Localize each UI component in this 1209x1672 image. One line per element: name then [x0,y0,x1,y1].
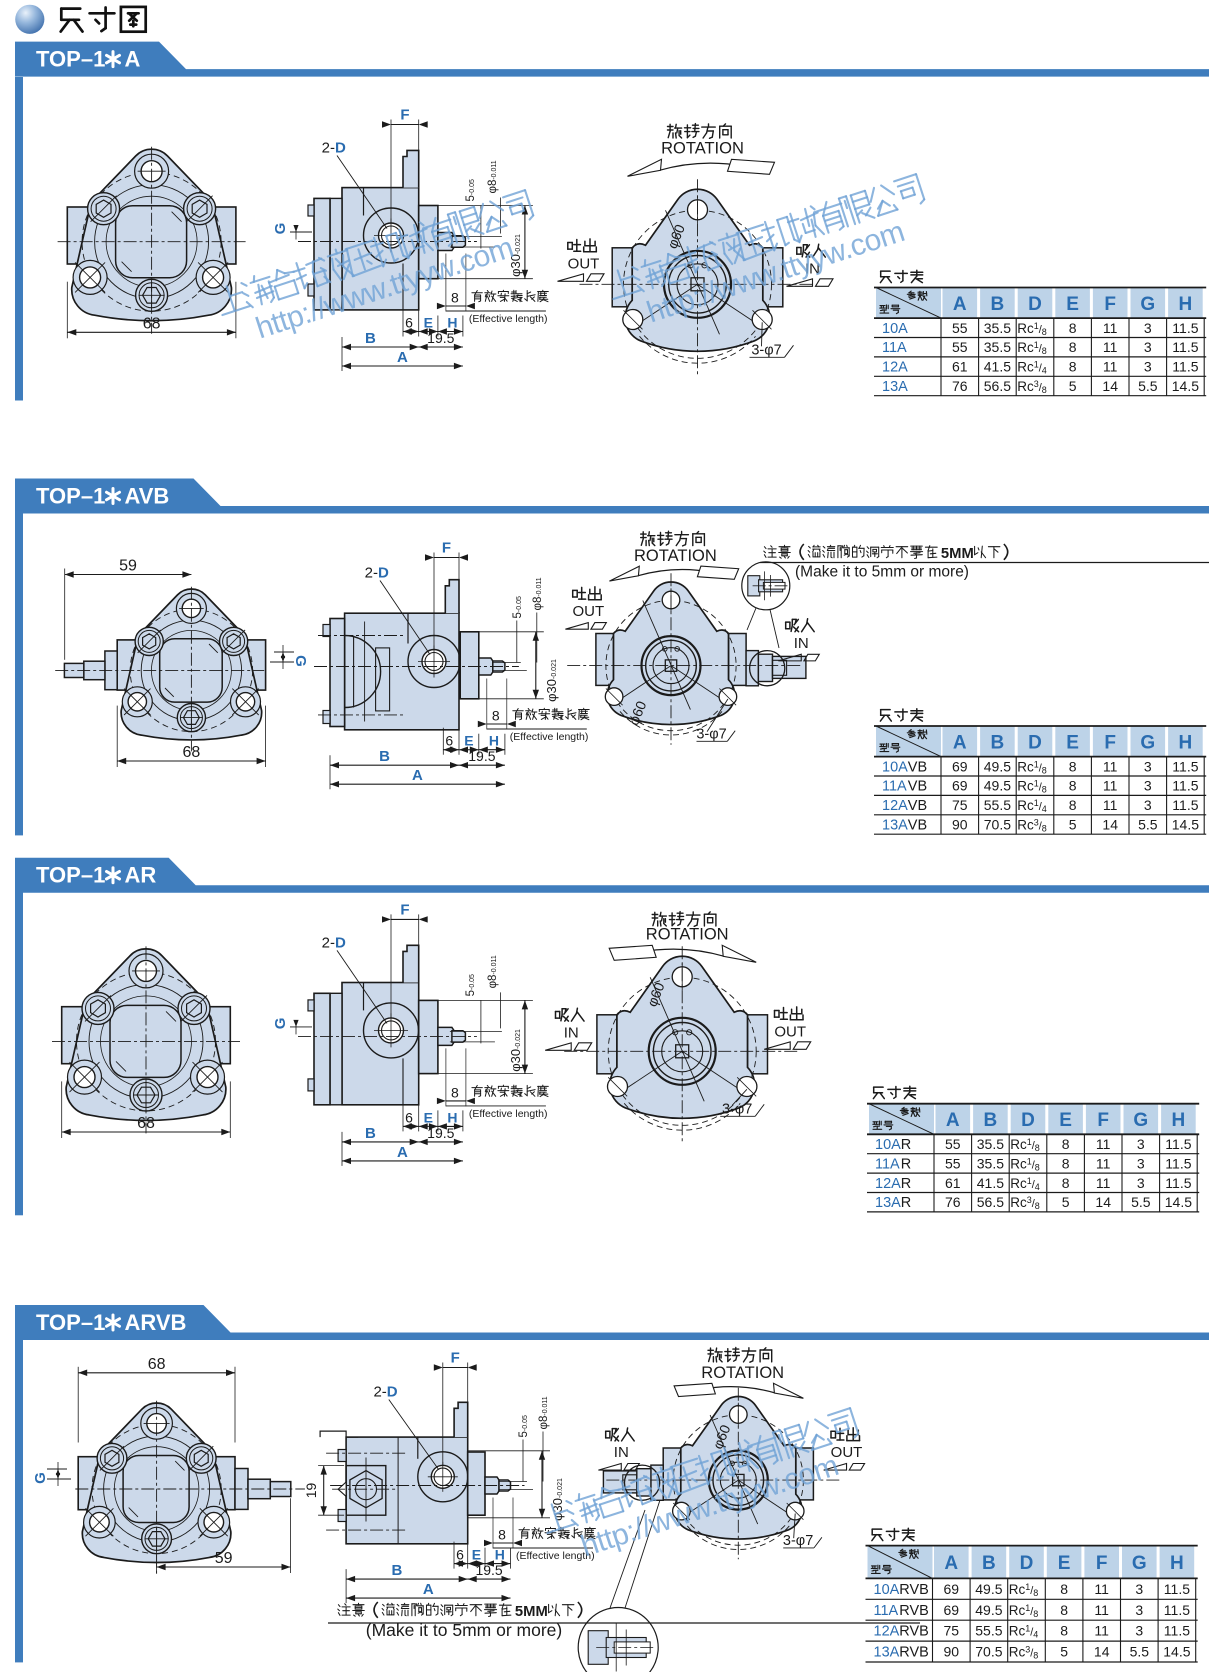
svg-text:D: D [1021,1110,1035,1131]
svg-text:3-φ7: 3-φ7 [783,1533,813,1549]
svg-text:14: 14 [1094,1644,1110,1660]
svg-text:OUT: OUT [774,1023,806,1040]
svg-text:B: B [991,732,1005,753]
svg-text:6: 6 [405,315,413,331]
svg-text:A: A [953,732,967,753]
svg-text:RVB: RVB [899,1624,929,1640]
svg-text:D: D [1028,732,1042,753]
svg-text:10A: 10A [882,759,908,775]
svg-text:55: 55 [945,1136,961,1152]
svg-text:3-φ7: 3-φ7 [751,342,781,358]
svg-text:6: 6 [405,1109,413,1125]
svg-text:55: 55 [952,320,968,336]
svg-text:G: G [1132,1553,1147,1574]
svg-text:IN: IN [794,635,809,652]
svg-text:12A: 12A [882,360,908,376]
svg-text:68: 68 [183,744,201,761]
svg-text:8: 8 [1069,359,1077,375]
svg-text:11: 11 [1103,320,1118,336]
svg-text:TOP–1: TOP–1 [36,47,105,72]
svg-text:11: 11 [1096,1175,1111,1191]
svg-text:14: 14 [1102,378,1118,394]
svg-text:11.5: 11.5 [1172,359,1198,375]
svg-text:68: 68 [137,1115,155,1132]
svg-text:5: 5 [1069,378,1077,394]
svg-text:5MM: 5MM [515,1604,548,1620]
svg-text:14.5: 14.5 [1163,1644,1190,1660]
svg-text:70.5: 70.5 [984,817,1011,833]
svg-text:49.5: 49.5 [975,1602,1002,1618]
svg-text:69: 69 [952,778,968,794]
svg-text:13A: 13A [874,1645,900,1661]
svg-text:11: 11 [1094,1602,1109,1618]
svg-text:8: 8 [1069,797,1077,813]
svg-text:3: 3 [1144,320,1152,336]
svg-text:55.5: 55.5 [975,1623,1002,1639]
svg-text:11: 11 [1094,1623,1109,1639]
svg-text:(Make it to 5mm or more): (Make it to 5mm or more) [795,564,969,581]
svg-text:D: D [378,565,389,582]
svg-text:E: E [1066,294,1079,315]
svg-text:35.5: 35.5 [977,1155,1004,1171]
svg-text:11: 11 [1103,339,1118,355]
svg-text:13A: 13A [882,379,908,395]
svg-text:A: A [412,767,423,784]
svg-text:11.5: 11.5 [1172,320,1198,336]
svg-text:90: 90 [952,817,968,833]
svg-text:8: 8 [1062,1136,1070,1152]
svg-text:8: 8 [498,1527,506,1543]
svg-text:B: B [984,1110,998,1131]
svg-text:49.5: 49.5 [984,758,1011,774]
svg-text:(Effective length): (Effective length) [510,731,589,743]
svg-text:F: F [400,107,409,124]
svg-text:G: G [1140,294,1155,315]
svg-text:41.5: 41.5 [977,1175,1004,1191]
svg-text:E: E [1058,1553,1071,1574]
svg-text:90: 90 [944,1644,960,1660]
svg-text:F: F [1104,294,1116,315]
svg-text:56.5: 56.5 [977,1194,1004,1210]
svg-text:RVB: RVB [899,1603,929,1619]
svg-text:11.5: 11.5 [1165,1155,1191,1171]
svg-text:11: 11 [1096,1155,1111,1171]
svg-text:69: 69 [952,758,968,774]
svg-text:5.5: 5.5 [1130,1644,1150,1660]
svg-text:RVB: RVB [899,1645,929,1661]
svg-text:AR: AR [125,863,157,888]
svg-text:12A: 12A [882,798,908,814]
svg-text:TOP–1: TOP–1 [36,1310,105,1335]
svg-text:76: 76 [945,1194,961,1210]
svg-text:10A: 10A [882,321,908,337]
svg-text:3: 3 [1135,1623,1143,1639]
svg-text:H: H [447,315,457,331]
svg-text:E: E [464,733,473,749]
svg-text:41.5: 41.5 [984,359,1011,375]
svg-text:H: H [489,733,499,749]
svg-text:G: G [292,655,309,667]
svg-text:56.5: 56.5 [984,378,1011,394]
svg-text:ROTATION: ROTATION [701,1364,784,1382]
svg-text:B: B [379,748,390,765]
svg-text:19.5: 19.5 [468,748,495,764]
svg-text:6: 6 [445,733,453,749]
svg-text:55.5: 55.5 [984,797,1011,813]
svg-text:75: 75 [944,1623,960,1639]
svg-text:70.5: 70.5 [975,1644,1002,1660]
svg-text:8: 8 [1069,758,1077,774]
svg-text:3: 3 [1137,1175,1145,1191]
svg-text:ROTATION: ROTATION [646,925,729,943]
svg-text:D: D [1020,1553,1034,1574]
svg-text:14: 14 [1102,817,1118,833]
svg-text:8: 8 [492,708,500,724]
svg-text:8: 8 [451,290,459,306]
svg-text:8: 8 [1060,1581,1068,1597]
svg-text:3: 3 [1144,359,1152,375]
svg-text:3: 3 [1144,339,1152,355]
svg-text:12A: 12A [875,1176,901,1192]
svg-text:H: H [1172,1110,1186,1131]
svg-text:B: B [991,294,1005,315]
svg-text:68: 68 [148,1356,166,1373]
svg-text:H: H [1170,1553,1184,1574]
svg-text:11.5: 11.5 [1172,797,1198,813]
svg-text:F: F [442,540,451,557]
svg-text:13A: 13A [882,818,908,834]
svg-text:D: D [1028,294,1042,315]
svg-text:B: B [391,1562,402,1579]
svg-text:68: 68 [143,315,161,332]
svg-text:IN: IN [564,1024,579,1041]
svg-text:3: 3 [1137,1136,1145,1152]
svg-text:H: H [447,1109,457,1125]
svg-text:R: R [901,1176,911,1192]
svg-text:10A: 10A [875,1137,901,1153]
svg-text:8: 8 [451,1084,459,1100]
svg-text:49.5: 49.5 [984,778,1011,794]
svg-text:VB: VB [908,759,927,775]
svg-text:H: H [495,1547,505,1563]
svg-text:11.5: 11.5 [1172,339,1198,355]
svg-text:11: 11 [1094,1581,1109,1597]
svg-text:69: 69 [944,1602,960,1618]
svg-text:A: A [944,1553,958,1574]
svg-text:2-: 2- [322,140,335,157]
svg-text:A: A [397,1144,408,1161]
svg-text:11.5: 11.5 [1164,1602,1190,1618]
svg-text:AVB: AVB [125,484,170,509]
svg-text:E: E [1066,732,1079,753]
svg-text:69: 69 [944,1581,960,1597]
svg-text:G: G [1140,732,1155,753]
svg-text:11A: 11A [882,779,907,795]
svg-text:H: H [1179,732,1193,753]
svg-text:3: 3 [1144,778,1152,794]
svg-text:11: 11 [1103,758,1118,774]
svg-text:5.5: 5.5 [1131,1194,1151,1210]
svg-text:IN: IN [614,1444,629,1461]
svg-text:35.5: 35.5 [977,1136,1004,1152]
svg-text:G: G [1133,1110,1148,1131]
svg-text:55: 55 [945,1155,961,1171]
svg-text:OUT: OUT [572,603,604,620]
svg-text:5MM: 5MM [941,546,974,562]
svg-text:5: 5 [1060,1644,1068,1660]
svg-text:A: A [125,47,141,72]
svg-text:11.5: 11.5 [1164,1581,1190,1597]
svg-text:35.5: 35.5 [984,339,1011,355]
svg-text:A: A [423,1581,434,1598]
svg-text:11A: 11A [882,340,907,356]
svg-text:14: 14 [1095,1194,1111,1210]
svg-text:G: G [272,1018,289,1030]
svg-text:VB: VB [908,818,927,834]
svg-text:3: 3 [1135,1581,1143,1597]
svg-text:13A: 13A [875,1195,901,1211]
svg-text:E: E [424,1109,433,1125]
svg-text:19.5: 19.5 [427,330,454,346]
svg-text:8: 8 [1060,1602,1068,1618]
svg-text:D: D [335,140,346,157]
svg-text:19.5: 19.5 [427,1125,454,1141]
svg-text:R: R [901,1195,911,1211]
svg-text:3-φ7: 3-φ7 [696,727,726,743]
svg-text:14.5: 14.5 [1172,378,1199,394]
svg-text:G: G [272,223,289,235]
svg-text:75: 75 [952,797,968,813]
svg-text:8: 8 [1062,1155,1070,1171]
svg-text:H: H [1179,294,1193,315]
svg-text:E: E [424,315,433,331]
svg-text:35.5: 35.5 [984,320,1011,336]
svg-text:2-: 2- [373,1384,386,1401]
svg-text:A: A [946,1110,960,1131]
svg-text:D: D [387,1384,398,1401]
svg-text:14.5: 14.5 [1165,1194,1192,1210]
svg-text:VB: VB [908,798,927,814]
svg-text:11.5: 11.5 [1165,1136,1191,1152]
svg-text:ARVB: ARVB [125,1310,187,1335]
svg-text:F: F [1104,732,1116,753]
svg-text:3: 3 [1135,1602,1143,1618]
svg-text:11A: 11A [874,1603,899,1619]
svg-text:14.5: 14.5 [1172,817,1199,833]
svg-text:3: 3 [1144,797,1152,813]
svg-text:R: R [901,1156,911,1172]
svg-text:E: E [1059,1110,1072,1131]
svg-text:5: 5 [1069,817,1077,833]
svg-text:A: A [397,349,408,366]
svg-text:19.5: 19.5 [475,1562,502,1578]
svg-text:5: 5 [1062,1194,1070,1210]
svg-text:11: 11 [1096,1136,1111,1152]
svg-text:8: 8 [1062,1175,1070,1191]
svg-text:6: 6 [456,1547,464,1563]
svg-text:(Effective length): (Effective length) [469,313,548,325]
svg-text:61: 61 [945,1175,961,1191]
svg-text:B: B [365,1125,376,1142]
svg-text:11.5: 11.5 [1172,778,1198,794]
svg-text:8: 8 [1069,778,1077,794]
svg-text:11: 11 [1103,778,1118,794]
svg-text:2-: 2- [322,934,335,951]
svg-text:49.5: 49.5 [975,1581,1002,1597]
svg-text:OUT: OUT [831,1444,863,1461]
svg-text:B: B [365,330,376,347]
svg-text:ROTATION: ROTATION [634,547,717,565]
svg-text:8: 8 [1069,320,1077,336]
svg-text:61: 61 [952,359,968,375]
svg-text:3: 3 [1144,758,1152,774]
svg-text:11.5: 11.5 [1164,1623,1190,1639]
svg-text:B: B [982,1553,996,1574]
svg-text:11: 11 [1103,359,1118,375]
svg-text:59: 59 [215,1550,233,1567]
svg-text:8: 8 [1060,1623,1068,1639]
svg-text:(Make it to 5mm or more): (Make it to 5mm or more) [366,1620,562,1640]
svg-text:OUT: OUT [568,255,600,272]
svg-text:RVB: RVB [899,1582,929,1598]
svg-text:3-φ7: 3-φ7 [722,1101,752,1117]
svg-text:11: 11 [1103,797,1118,813]
svg-text:11A: 11A [875,1156,900,1172]
svg-text:F: F [1096,1553,1108,1574]
svg-text:G: G [32,1472,49,1484]
svg-text:8: 8 [1069,339,1077,355]
svg-text:TOP–1: TOP–1 [36,863,105,888]
svg-text:2-: 2- [365,565,378,582]
svg-text:55: 55 [952,339,968,355]
svg-text:R: R [901,1137,911,1153]
svg-text:5.5: 5.5 [1138,378,1158,394]
svg-text:5.5: 5.5 [1138,817,1158,833]
svg-text:TOP–1: TOP–1 [36,484,105,509]
svg-text:3: 3 [1137,1155,1145,1171]
svg-text:E: E [472,1547,481,1563]
svg-text:10A: 10A [874,1582,900,1598]
svg-text:11.5: 11.5 [1165,1175,1191,1191]
svg-text:76: 76 [952,378,968,394]
svg-text:12A: 12A [874,1624,900,1640]
svg-text:F: F [400,901,409,918]
svg-text:A: A [953,294,967,315]
svg-text:11.5: 11.5 [1172,758,1198,774]
svg-text:VB: VB [908,779,927,795]
svg-text:59: 59 [119,558,137,575]
svg-text:F: F [1097,1110,1109,1131]
svg-text:F: F [451,1350,460,1367]
svg-text:(Effective length): (Effective length) [469,1108,548,1120]
svg-text:D: D [335,934,346,951]
svg-text:ROTATION: ROTATION [661,139,744,157]
svg-text:19: 19 [303,1483,319,1499]
